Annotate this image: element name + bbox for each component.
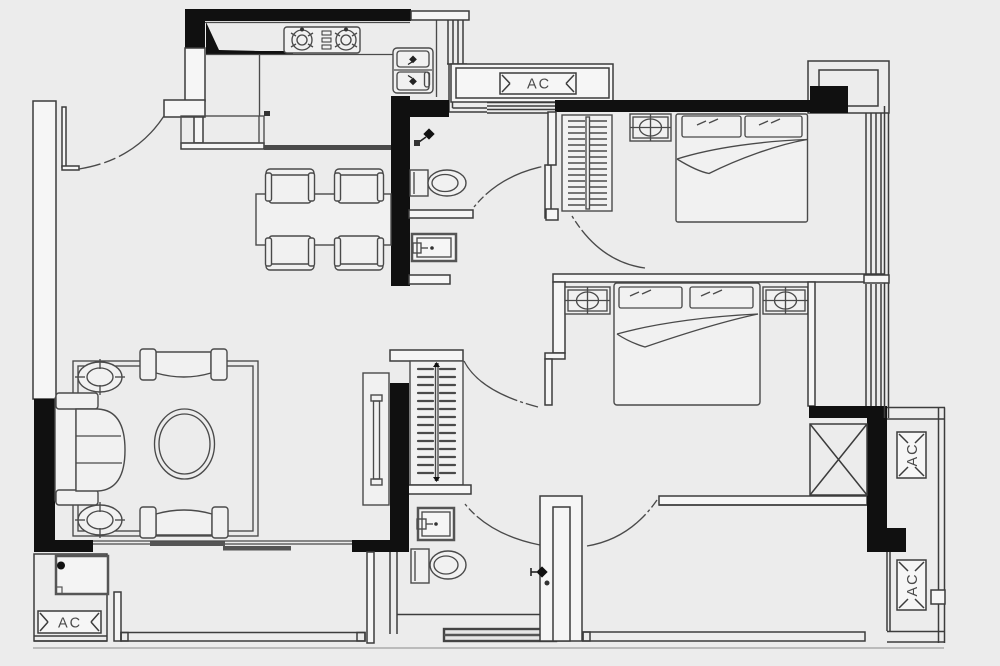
svg-text:AC: AC — [905, 572, 921, 596]
svg-text:AC: AC — [58, 616, 82, 632]
svg-text:AC: AC — [905, 442, 921, 466]
svg-text:AC: AC — [527, 77, 551, 93]
